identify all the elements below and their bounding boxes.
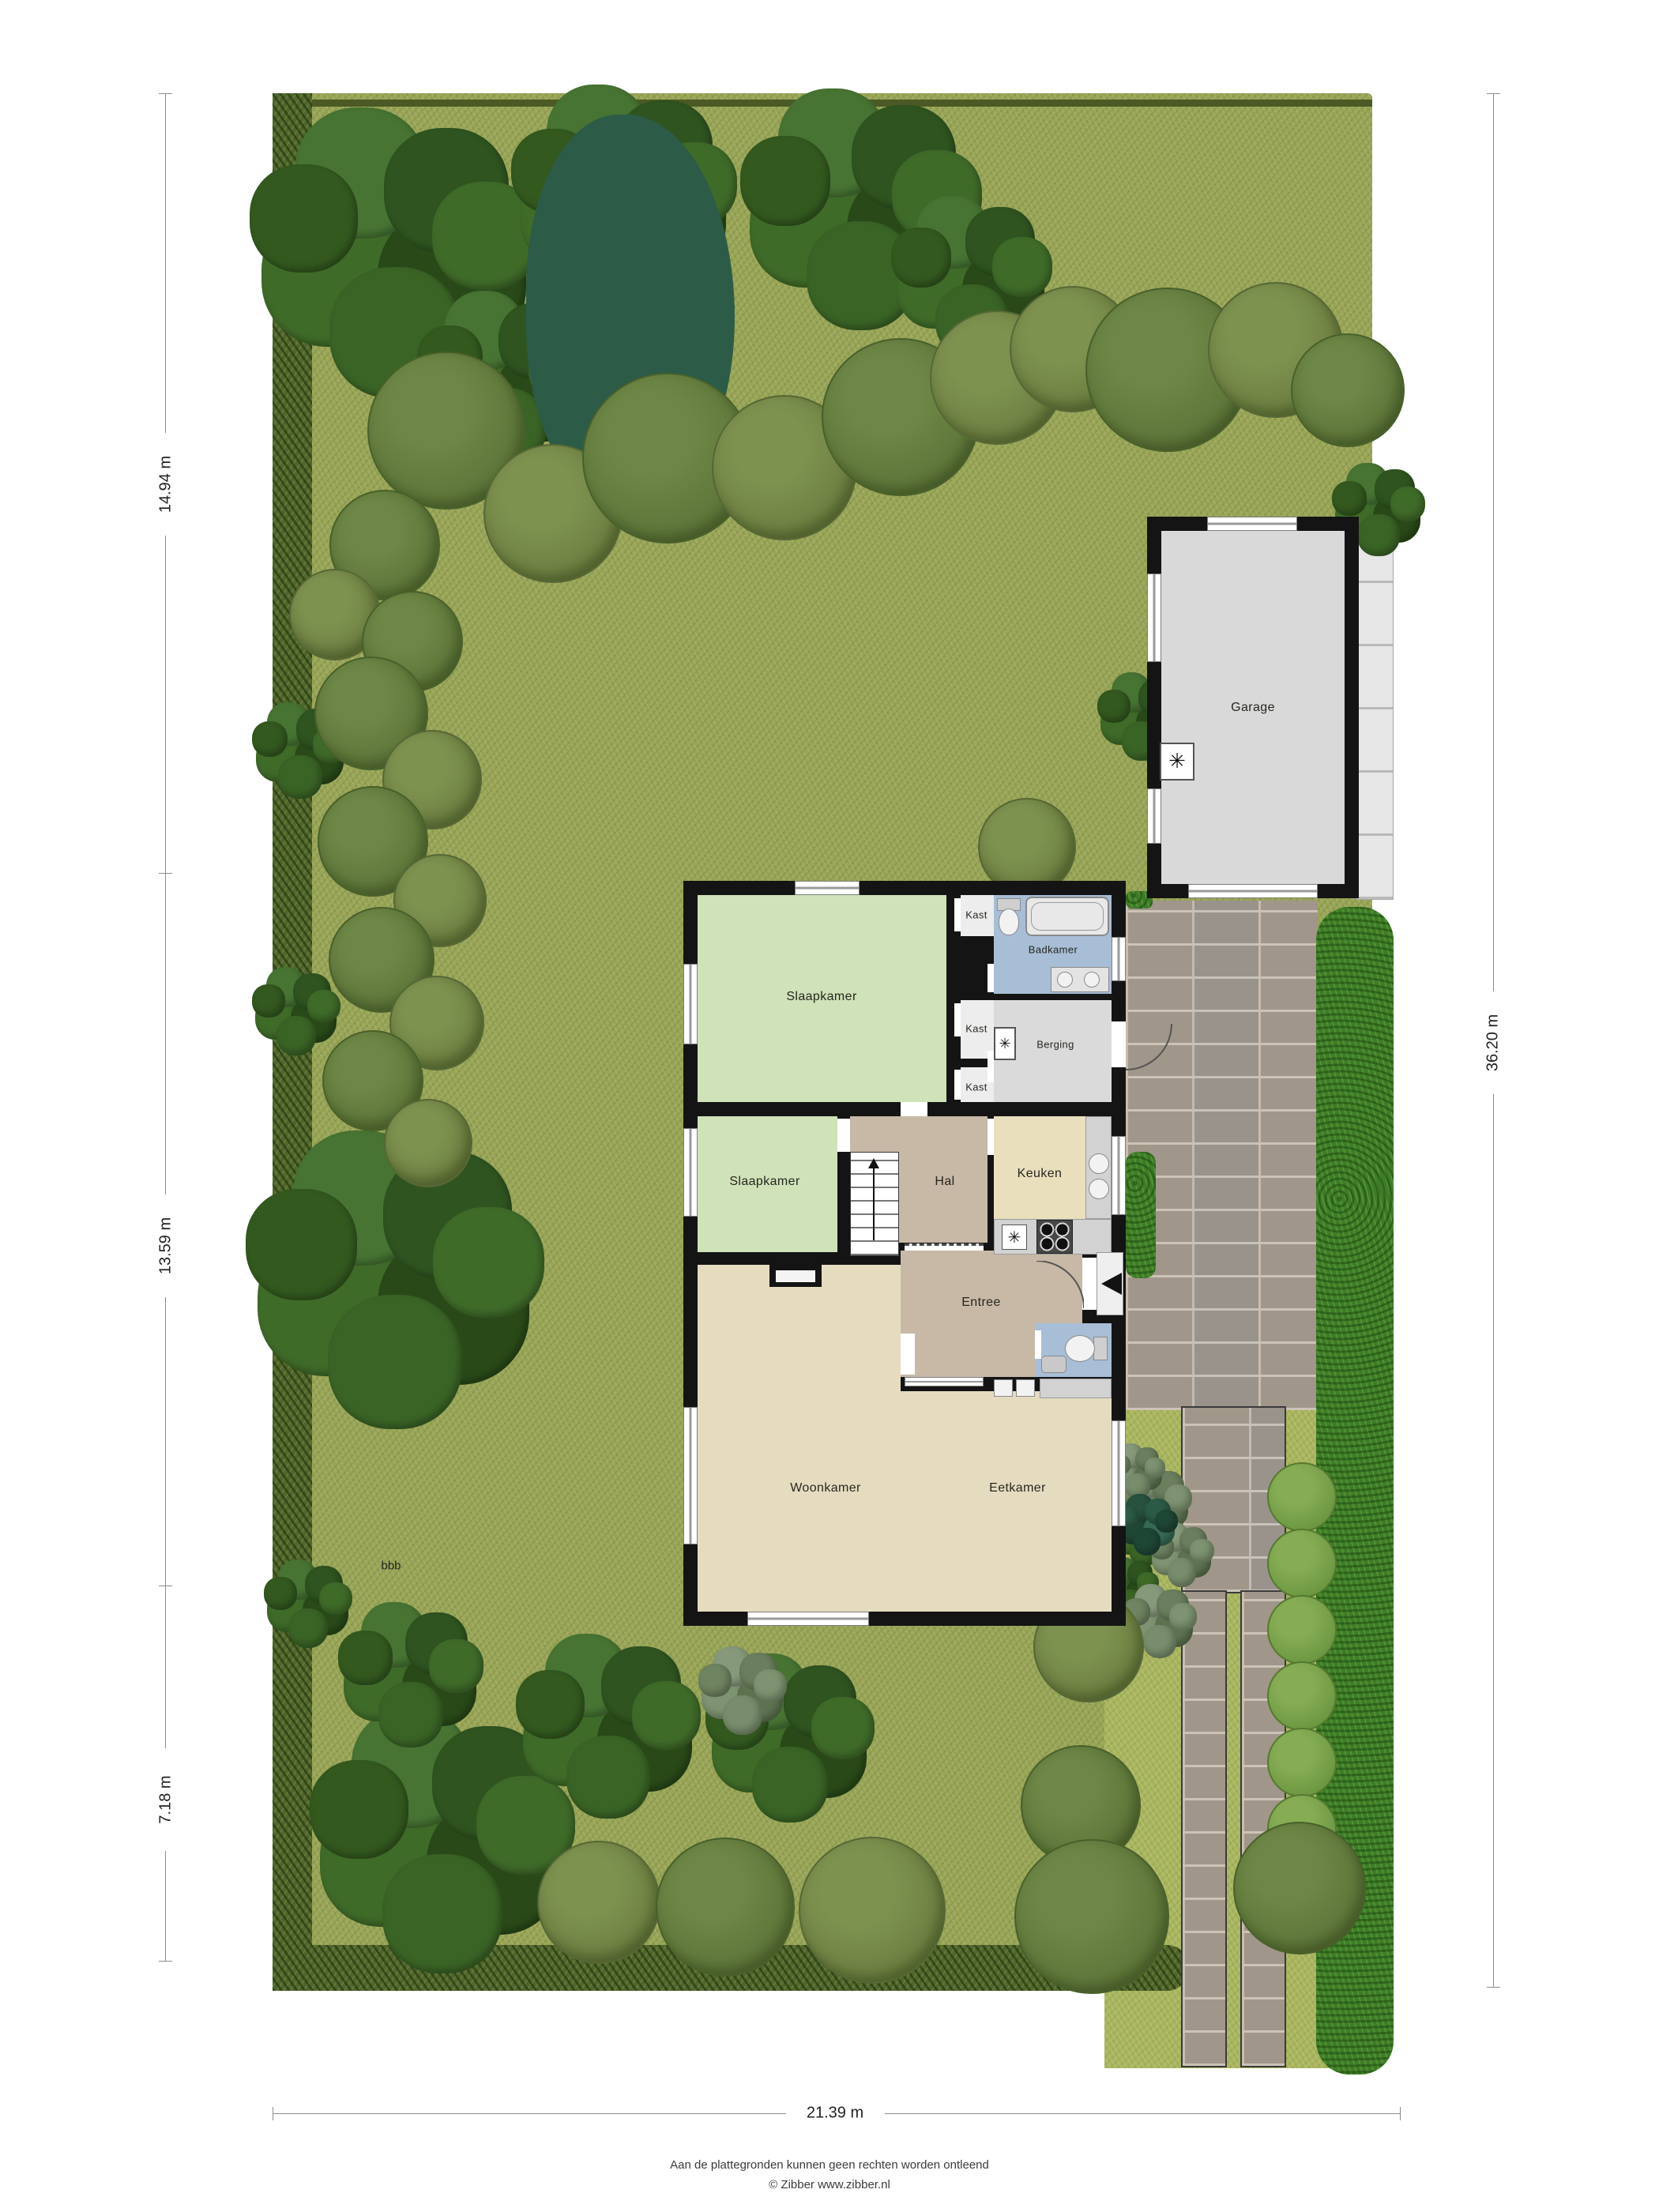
window-right-keuken bbox=[1112, 1136, 1126, 1215]
stove-icon bbox=[1036, 1220, 1073, 1254]
tree-foliage bbox=[699, 1647, 786, 1734]
label-hal: Hal bbox=[935, 1175, 954, 1189]
room-hal-upper bbox=[850, 1116, 899, 1152]
round-tree bbox=[384, 1099, 472, 1187]
tree-foliage bbox=[253, 968, 340, 1055]
garage-window-left-2 bbox=[1147, 788, 1161, 844]
berging-exterior-door bbox=[1112, 1021, 1126, 1067]
bush bbox=[1267, 1728, 1337, 1797]
bush bbox=[1267, 1529, 1337, 1598]
door-kast1 bbox=[954, 898, 961, 931]
garage-window-top bbox=[1207, 517, 1297, 531]
round-tree bbox=[1291, 333, 1405, 447]
dim-label-left-middle: 13.59 m bbox=[157, 1217, 175, 1274]
footer-disclaimer: Aan de plattegronden kunnen geen rechten… bbox=[670, 2158, 989, 2172]
window-left-woonkamer bbox=[683, 1407, 698, 1544]
door-berging-inner bbox=[987, 1051, 994, 1082]
front-door-opening bbox=[1082, 1258, 1097, 1310]
cupboard-strip bbox=[1040, 1379, 1112, 1398]
dim-bottom-tick2 bbox=[1400, 2107, 1401, 2120]
front-door-arc bbox=[1035, 1261, 1084, 1310]
garage-window-left-1 bbox=[1147, 574, 1161, 662]
round-tree bbox=[656, 1838, 795, 1977]
door-toilet bbox=[1035, 1330, 1041, 1359]
round-tree bbox=[1233, 1822, 1366, 1954]
label-slaapkamer-1: Slaapkamer bbox=[786, 990, 856, 1004]
wc-basin bbox=[1041, 1356, 1066, 1373]
door-kast2 bbox=[954, 1003, 961, 1036]
dim-left-seg1b bbox=[165, 536, 166, 873]
dim-right-sega bbox=[1493, 93, 1494, 991]
dim-left-tick3 bbox=[159, 1586, 172, 1586]
door-slaapkamer1-hal bbox=[901, 1102, 927, 1116]
tree-foliage bbox=[517, 1635, 699, 1817]
tree-foliage bbox=[340, 1604, 482, 1746]
dim-bottom-segb bbox=[885, 2113, 1400, 2114]
driveway bbox=[1126, 901, 1318, 1410]
label-slaapkamer-2: Slaapkamer bbox=[729, 1175, 799, 1189]
dim-label-bottom: 21.39 m bbox=[807, 2105, 863, 2123]
door-badkamer bbox=[987, 964, 994, 992]
interior-window-entree bbox=[905, 1377, 984, 1386]
dim-left-seg2b bbox=[165, 1297, 166, 1586]
dim-right-tick2 bbox=[1487, 1987, 1500, 1988]
round-tree bbox=[1014, 1839, 1169, 1994]
dim-left-tick4 bbox=[159, 1961, 172, 1962]
dim-left-tick2 bbox=[159, 873, 172, 874]
kitchen-sink-2 bbox=[1089, 1179, 1109, 1199]
window-right-eetkamer bbox=[1112, 1420, 1126, 1526]
window-top bbox=[795, 881, 860, 895]
door-kast3 bbox=[954, 1070, 961, 1100]
stair-arrow-head bbox=[868, 1158, 879, 1168]
fireplace-inner bbox=[776, 1270, 815, 1282]
toilet-bowl-badkamer bbox=[999, 908, 1019, 935]
washer-icon bbox=[994, 1379, 1013, 1397]
door-entree-woonkamer bbox=[901, 1334, 915, 1375]
garage-label: Garage bbox=[1231, 701, 1275, 715]
bush bbox=[1267, 1661, 1337, 1731]
dim-left-tick1 bbox=[159, 93, 172, 94]
tree-foliage bbox=[249, 1134, 541, 1426]
room-eetkamer bbox=[901, 1391, 1112, 1612]
dim-label-right: 36.20 m bbox=[1484, 1014, 1503, 1071]
dim-label-left-top: 14.94 m bbox=[157, 456, 175, 513]
label-eetkamer: Eetkamer bbox=[989, 1481, 1046, 1495]
dim-right-segb bbox=[1493, 1094, 1494, 1987]
washbasin-bowl-2 bbox=[1084, 972, 1100, 987]
round-tree bbox=[537, 1841, 660, 1964]
boiler-icon-berging: ✳ bbox=[994, 1027, 1016, 1060]
toilet-bowl-wc bbox=[1065, 1335, 1095, 1362]
label-badkamer: Badkamer bbox=[1029, 944, 1078, 956]
dim-left-seg2a bbox=[165, 873, 166, 1194]
label-kast-2: Kast bbox=[965, 1023, 987, 1035]
label-kast-1: Kast bbox=[965, 909, 987, 921]
round-tree bbox=[799, 1837, 946, 1984]
dim-right-tick1 bbox=[1487, 93, 1500, 94]
bush bbox=[1267, 1462, 1337, 1532]
extractor-fan-icon: ✳ bbox=[1002, 1224, 1027, 1250]
label-entree: Entree bbox=[961, 1296, 1001, 1310]
bathtub bbox=[1025, 897, 1109, 936]
boiler-unit-icon: ✳ bbox=[1160, 743, 1194, 781]
garage-door bbox=[1188, 884, 1318, 898]
label-keuken: Keuken bbox=[1018, 1167, 1063, 1181]
sliding-door-hal-entree bbox=[905, 1243, 984, 1251]
dim-left-seg3a bbox=[165, 1586, 166, 1748]
entrance-arrow-icon bbox=[1101, 1273, 1122, 1295]
dim-bottom-sega bbox=[273, 2113, 786, 2114]
window-right-badkamer bbox=[1112, 937, 1126, 981]
dim-left-seg3b bbox=[165, 1851, 166, 1961]
label-berging: Berging bbox=[1036, 1039, 1074, 1051]
toilet-tank-wc bbox=[1093, 1337, 1108, 1360]
door-keuken bbox=[987, 1119, 994, 1155]
tree-foliage bbox=[265, 1560, 352, 1647]
footer-credit: © Zibber www.zibber.nl bbox=[769, 2178, 890, 2191]
hedge-block-facade bbox=[1126, 1152, 1156, 1278]
kitchen-sink-1 bbox=[1089, 1153, 1109, 1174]
stray-text: bbb bbox=[381, 1559, 401, 1573]
dim-label-left-bottom: 7.18 m bbox=[157, 1775, 175, 1823]
window-left-slaapkamer1 bbox=[683, 964, 698, 1044]
door-slaapkamer2 bbox=[837, 1119, 850, 1152]
berging-door-arc bbox=[1126, 1024, 1173, 1071]
dim-left-seg1a bbox=[165, 93, 166, 433]
label-kast-3: Kast bbox=[965, 1082, 987, 1093]
window-bottom-woonkamer bbox=[747, 1612, 869, 1626]
washbasin-bowl-1 bbox=[1057, 972, 1073, 987]
stair-arrow bbox=[873, 1168, 875, 1240]
label-woonkamer: Woonkamer bbox=[790, 1481, 861, 1495]
bush bbox=[1267, 1595, 1337, 1665]
site-plan: ✳ Garage ✳ ✳ bbox=[0, 0, 1659, 2212]
window-left-slaapkamer2 bbox=[683, 1128, 698, 1217]
dim-bottom-tick1 bbox=[273, 2107, 273, 2120]
tree-foliage bbox=[1117, 1495, 1177, 1555]
sidewalk-next-to-garage bbox=[1356, 517, 1394, 900]
path-strip-left bbox=[1183, 1592, 1225, 2066]
room-woonkamer bbox=[698, 1265, 901, 1612]
dryer-icon bbox=[1016, 1379, 1035, 1397]
